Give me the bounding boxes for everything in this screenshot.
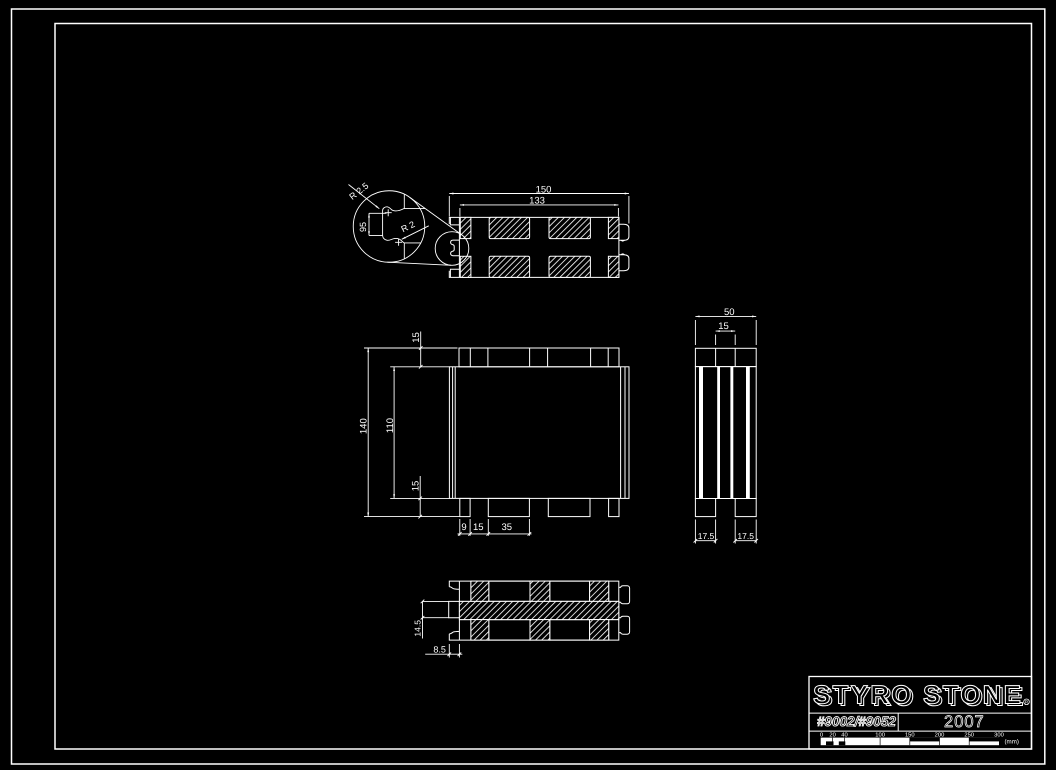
svg-text:100: 100 xyxy=(875,732,885,739)
svg-text:95: 95 xyxy=(358,222,368,232)
svg-text:140: 140 xyxy=(359,418,370,434)
svg-text:40: 40 xyxy=(841,732,847,739)
svg-text:17.5: 17.5 xyxy=(698,531,715,541)
svg-text:0: 0 xyxy=(820,732,823,739)
svg-text:200: 200 xyxy=(935,732,945,739)
svg-text:15: 15 xyxy=(411,332,422,343)
svg-text:STYRO STONE: STYRO STONE xyxy=(813,680,1021,710)
svg-text:133: 133 xyxy=(529,196,545,207)
svg-text:110: 110 xyxy=(385,418,396,433)
svg-text:15: 15 xyxy=(473,522,484,533)
svg-text:150: 150 xyxy=(905,732,915,739)
svg-text:50: 50 xyxy=(724,307,735,318)
svg-text:(mm): (mm) xyxy=(1005,739,1019,746)
svg-text:250: 250 xyxy=(964,732,974,739)
svg-text:35: 35 xyxy=(502,522,513,533)
svg-text:2007: 2007 xyxy=(944,713,985,731)
svg-text:300: 300 xyxy=(994,732,1004,739)
svg-text:15: 15 xyxy=(410,481,421,492)
svg-text:15: 15 xyxy=(718,321,729,332)
svg-text:9: 9 xyxy=(461,522,466,533)
svg-text:150: 150 xyxy=(536,184,552,195)
svg-text:20: 20 xyxy=(829,732,835,739)
svg-text:17.5: 17.5 xyxy=(737,531,754,541)
svg-text:#9002/#9052: #9002/#9052 xyxy=(817,714,896,729)
svg-text:14.5: 14.5 xyxy=(412,620,422,637)
svg-text:8.5: 8.5 xyxy=(433,644,446,654)
